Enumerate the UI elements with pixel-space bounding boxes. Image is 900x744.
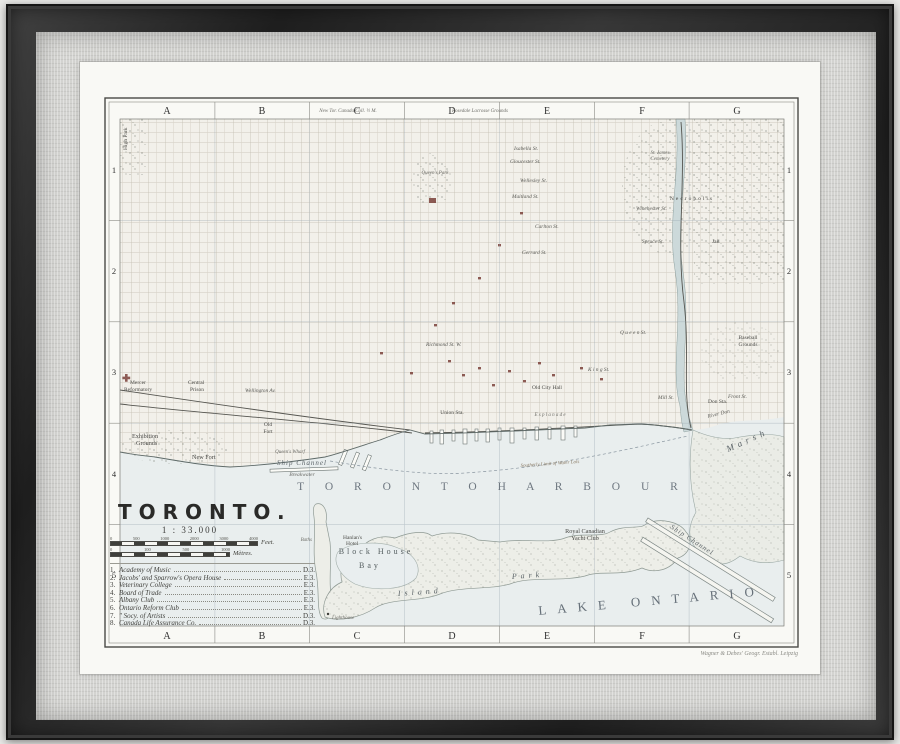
- richmond-st-label: Richmond St. W.: [425, 342, 461, 348]
- front-st-label: Front St.: [727, 394, 747, 400]
- central-prison-label-1: Central: [188, 380, 205, 386]
- map-sheet: A B C D E F G A B C D E F G 1 2: [80, 62, 820, 674]
- lighthouse-label: Lighthouse: [331, 616, 355, 621]
- king-st-label: K i n g St.: [587, 367, 609, 373]
- svg-text:B: B: [259, 106, 266, 117]
- wellington-av-label: Wellington Av.: [245, 388, 276, 394]
- picture-frame: A B C D E F G A B C D E F G 1 2: [6, 4, 894, 740]
- old-city-hall-label: Old City Hall: [532, 385, 562, 391]
- svg-text:3: 3: [787, 367, 791, 377]
- rcyc-label-2: Yacht Club: [571, 535, 599, 542]
- esplanade-label: E s p l a n a d e: [533, 413, 566, 418]
- scalebar-feet-unit: Feet.: [261, 539, 274, 546]
- map-legend: 1.Academy of MusicD.3. 2.Jacobs' and Spa…: [110, 563, 315, 628]
- queens-park-label: Queen's Park: [421, 171, 449, 176]
- ship-channel-west-label: Ship Channel: [277, 459, 327, 467]
- exhibition-label-1: Exhibition: [132, 433, 158, 440]
- baseball-label-1: Baseball: [739, 335, 758, 341]
- svg-text:E: E: [544, 631, 550, 642]
- bay-label: Bay: [359, 561, 381, 570]
- high-park-label: High Park: [123, 127, 129, 150]
- grid-letters-bottom: A B C D E F G: [163, 631, 740, 642]
- svg-text:G: G: [733, 631, 740, 642]
- title-block: TORONTO. 1 : 33.000 05001000200030004000…: [110, 500, 328, 628]
- svg-text:5: 5: [787, 570, 791, 580]
- winchester-st-label: Winchester St.: [636, 206, 667, 212]
- svg-text:3: 3: [112, 367, 116, 377]
- canada-college-note: New Tor. Canada Coll. ½ M.: [318, 109, 376, 114]
- jail-label: Jail: [712, 239, 720, 245]
- svg-text:1: 1: [112, 165, 116, 175]
- queens-wharf-label: Queen's Wharf: [275, 450, 305, 455]
- grid-numbers-right: 1 2 3 4 5: [787, 165, 792, 580]
- mercer-label-1: Mercer: [130, 380, 146, 386]
- carlton-st-label: Carlton St.: [535, 224, 559, 230]
- svg-text:2: 2: [787, 266, 791, 276]
- publisher-imprint: Wagner & Debes' Geogr. Establ. Leipzig: [700, 651, 798, 657]
- st-james-label-2: Cemetery: [650, 157, 670, 162]
- central-prison-label-2: Prison: [190, 387, 204, 393]
- hanlans-label-2: Hotel: [346, 541, 359, 547]
- svg-text:F: F: [639, 631, 645, 642]
- mercer-label-2: Reformatory: [124, 386, 152, 393]
- queen-st-label: Q u e e n St.: [620, 330, 646, 336]
- don-station-label: Don Sta.: [708, 399, 728, 405]
- toronto-harbour-label: T O R O N T O H A R B O U R: [297, 481, 687, 493]
- new-fort-label: New Fort: [192, 454, 216, 461]
- old-fort-label-2: Fort: [263, 429, 273, 435]
- breakwater-label: Breakwater: [289, 472, 315, 478]
- legend-item: 8.Canada Life Assurance Co.D.3.: [110, 620, 315, 628]
- baseball-label-2: Grounds: [739, 342, 758, 348]
- gloucester-st-label: Gloucester St.: [510, 159, 541, 165]
- scalebar-feet: 05001000200030004000 Feet.: [110, 537, 328, 546]
- svg-text:F: F: [639, 106, 645, 117]
- isabella-st-label: Isabella St.: [513, 146, 538, 152]
- map-title: TORONTO.: [118, 500, 328, 524]
- svg-text:4: 4: [112, 469, 117, 479]
- svg-text:A: A: [163, 106, 171, 117]
- svg-text:C: C: [354, 631, 361, 642]
- svg-text:A: A: [163, 631, 171, 642]
- rcyc-label-1: Royal Canadian: [565, 528, 605, 535]
- spruce-st-label: Spruce St.: [642, 239, 664, 245]
- block-house-label: Block House: [339, 547, 414, 556]
- st-james-label-1: St. James: [651, 151, 670, 156]
- necropolis-label: Necropolis: [670, 196, 714, 202]
- svg-text:G: G: [733, 106, 740, 117]
- lacrosse-grounds-note: Rosedale Lacrosse Grounds: [451, 109, 508, 114]
- map-scale-ratio: 1 : 33.000: [110, 525, 270, 535]
- union-station-label: Union Sta.: [440, 410, 464, 416]
- scalebar-metres: 01005001000 Mètres.: [110, 548, 328, 557]
- scalebar-metre-unit: Mètres.: [233, 550, 252, 557]
- svg-text:2: 2: [112, 266, 116, 276]
- scalebar-metres-bar: [110, 552, 230, 557]
- svg-text:4: 4: [787, 469, 792, 479]
- maitland-st-label: Maitland St.: [511, 194, 539, 200]
- mill-st-label: Mill St.: [657, 395, 674, 401]
- exhibition-label-2: Grounds: [136, 440, 158, 447]
- svg-text:D: D: [448, 631, 455, 642]
- svg-text:E: E: [544, 106, 550, 117]
- gerrard-st-label: Gerrard St.: [522, 250, 547, 256]
- old-fort-label-1: Old: [264, 422, 273, 428]
- wellesley-st-label: Wellesley St.: [520, 178, 547, 184]
- scalebar-feet-bar: [110, 541, 258, 546]
- svg-text:B: B: [259, 631, 266, 642]
- svg-text:1: 1: [787, 165, 791, 175]
